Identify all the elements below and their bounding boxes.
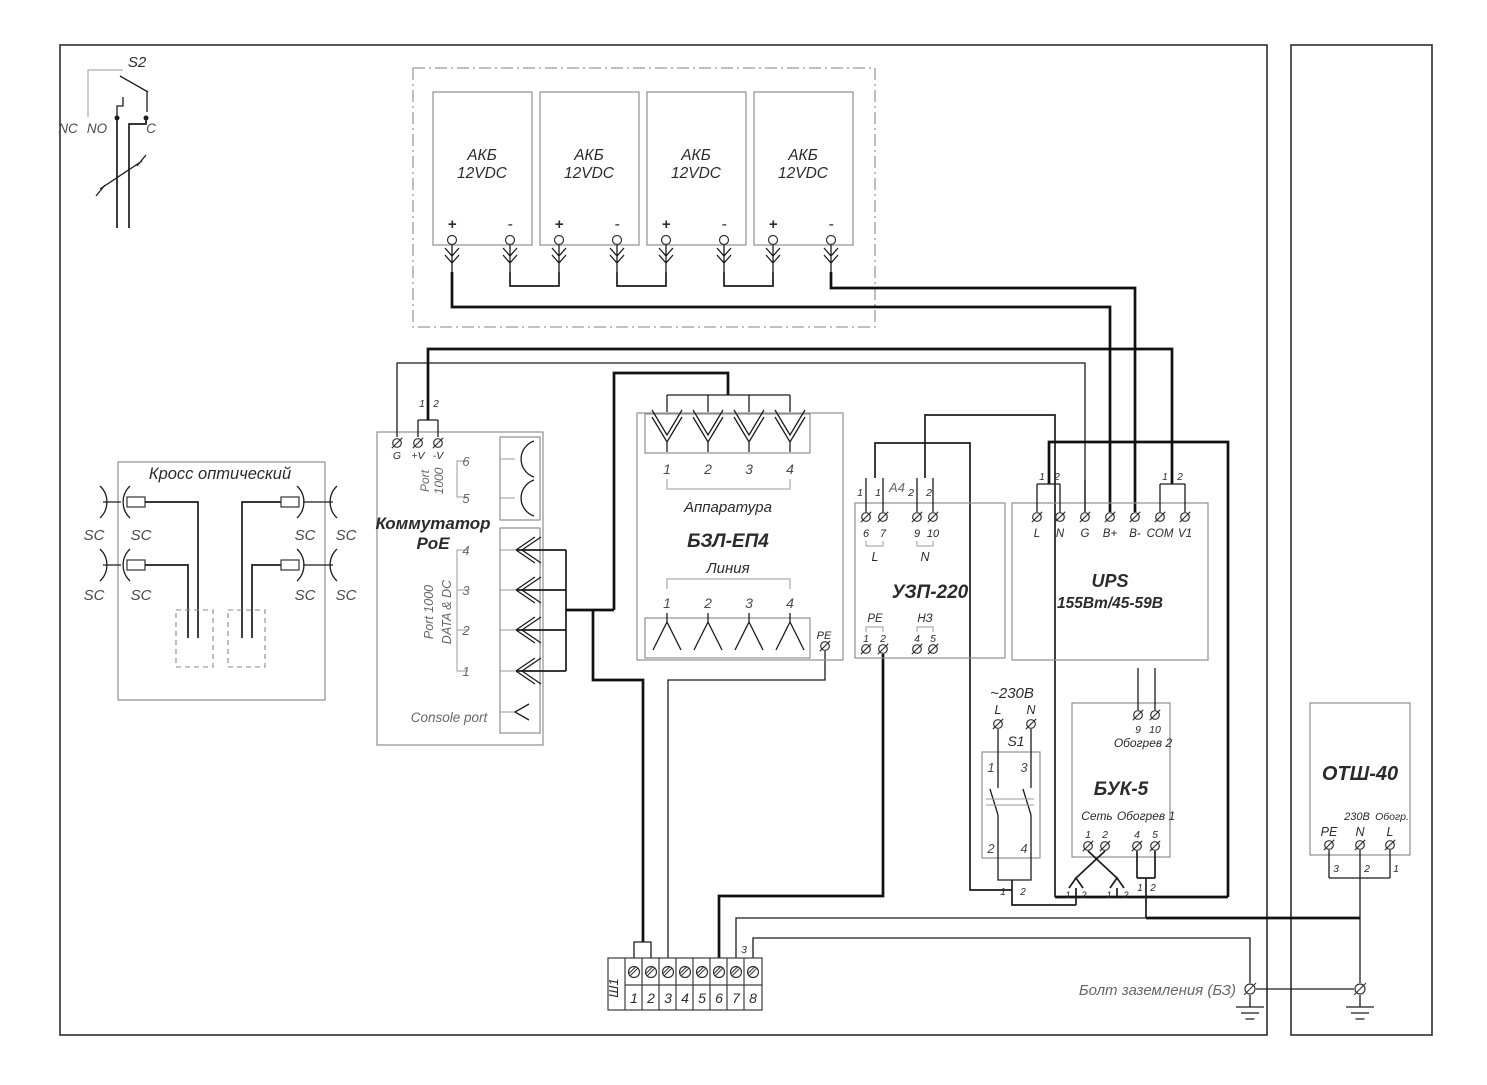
buk-net-label: Сеть (1081, 809, 1113, 823)
s1-wire2: 2 (1019, 887, 1026, 898)
buk-n5: 5 (1152, 829, 1158, 841)
otsh-title: ОТШ-40 (1322, 763, 1398, 785)
bat4-minus: - (828, 216, 833, 233)
bzl-bottom-strip (645, 618, 810, 658)
otsh-wire3: 3 (1333, 863, 1339, 875)
battery-series-links (510, 272, 773, 286)
poe-port2-label: 2 (461, 623, 470, 638)
poe-port6-label: 6 (462, 454, 470, 469)
battery-1-voltage: 12VDC (457, 165, 508, 182)
bzl-title: БЗЛ-ЕП4 (687, 531, 769, 552)
bzl-app-4: 4 (786, 461, 794, 477)
ups-l: L (1034, 528, 1040, 540)
uzp-t7: 7 (880, 528, 887, 540)
buk-title: БУК-5 (1094, 779, 1149, 800)
port1000-label-b: 1000 (432, 467, 446, 494)
poe-wire2-label: 2 (432, 399, 439, 410)
buk-cable-label: 2 (1122, 890, 1129, 901)
bzl-line-4: 4 (786, 595, 794, 611)
sh1-4: 4 (681, 990, 689, 1006)
bzl-line-2: 2 (703, 595, 712, 611)
bzl-app-2: 2 (703, 461, 712, 477)
sh1-terminal-block: Ш1 1 2 3 4 5 6 7 8 (606, 942, 762, 1010)
bat1-plus: + (448, 216, 457, 233)
s1-c3: 3 (1020, 760, 1028, 775)
s2-c-label: C (146, 121, 156, 136)
ups-wire-label: 1 (1039, 472, 1045, 483)
uzp-b2: 2 (879, 633, 886, 645)
poe-port5-label: 5 (462, 491, 470, 506)
bzl-app-3: 3 (745, 461, 753, 477)
uzp-title: УЗП-220 (892, 582, 969, 603)
otsh-230v-label: 230В (1343, 811, 1370, 823)
uzp-t9: 9 (914, 528, 920, 540)
console-port-icon (515, 704, 529, 720)
otsh-pe-label: PE (1321, 825, 1338, 839)
ups-v1: V1 (1178, 528, 1192, 540)
s1-wire1: 1 (1000, 887, 1006, 898)
optical-cross: Кросс оптический SC SC SC SC SC SC SC SC (84, 462, 357, 700)
sc-label: SC (131, 587, 152, 604)
ground-bolt-2 (1354, 983, 1366, 995)
poe-vminus-terminal: -V (433, 450, 444, 462)
uzp-b1: 1 (863, 633, 869, 645)
port1000-label-a: Port (418, 469, 432, 492)
otsh-heat-label: Обогр. (1375, 811, 1409, 823)
bzl-app-1: 1 (663, 461, 671, 477)
ups-g: G (1081, 528, 1090, 540)
ups-title: UPS (1091, 571, 1128, 591)
bzl-pe-wire (668, 651, 825, 958)
sh1-5: 5 (698, 990, 706, 1006)
sc-label: SC (336, 587, 357, 604)
bat3-minus: - (721, 216, 726, 233)
sh1-6: 6 (715, 990, 723, 1006)
battery-3-label: АКБ (680, 147, 711, 164)
heat1-wire2: 2 (1149, 883, 1156, 894)
wiring: 3 (397, 349, 1360, 983)
sc-label: SC (295, 587, 316, 604)
ups-wire-label: 1 (1162, 472, 1168, 483)
ups-com: COM (1147, 528, 1174, 540)
console-port-label: Console port (411, 710, 489, 725)
bzl-fanout (667, 395, 790, 412)
sc-label: SC (295, 527, 316, 544)
battery-4-voltage: 12VDC (778, 165, 829, 182)
poe-port4-label: 4 (462, 543, 469, 558)
uzp-n-label: N (920, 550, 930, 564)
s1-c4: 4 (1020, 841, 1027, 856)
grounding: Болт заземления (БЗ) (1079, 918, 1374, 1019)
poe-g-terminal: G (393, 450, 401, 462)
schematic-canvas: S2 NC NO C АКБ 12VDC АКБ 12VDC АКБ 12VDC… (0, 0, 1487, 1080)
uzp-b5: 5 (930, 633, 936, 645)
optic-port-block (500, 437, 540, 520)
bat4-plus: + (769, 216, 778, 233)
bzl-pe-label: PE (817, 630, 832, 642)
poe-title-2: PoE (416, 534, 450, 553)
sh1-1: 1 (630, 990, 638, 1006)
fiber-pigtails (145, 502, 281, 638)
poe-wire1-label: 1 (419, 399, 425, 410)
splice-box-left (176, 610, 213, 667)
heat1-wire1: 1 (1137, 883, 1143, 894)
sc-label: SC (84, 587, 105, 604)
ups-bminus: B- (1129, 528, 1141, 540)
uzp-wire-label: 2 (907, 487, 914, 499)
s1-c1: 1 (987, 760, 994, 775)
battery-1-label: АКБ (466, 147, 497, 164)
buk-t10: 10 (1149, 724, 1161, 736)
bat2-plus: + (555, 216, 564, 233)
battery-plus-bus (452, 272, 1110, 512)
otsh-l-label: L (1387, 825, 1394, 839)
battery-bank: АКБ 12VDC АКБ 12VDC АКБ 12VDC АКБ 12VDC … (413, 68, 1135, 512)
wire3-label: 3 (741, 944, 747, 956)
poe-vplus-terminal: +V (411, 450, 425, 462)
uzp-220: 1 1 А4 2 2 6 7 9 10 L N УЗП-220 PE НЗ 1 … (855, 478, 1005, 658)
buk-n2: 2 (1101, 829, 1108, 841)
battery-3-voltage: 12VDC (671, 165, 722, 182)
optical-cross-title: Кросс оптический (149, 465, 291, 483)
buk-cable-label: 1 (1106, 890, 1111, 901)
uzp-pe-wire (719, 654, 883, 958)
net-cross-wires (1075, 851, 1118, 879)
poe-port3-label: 3 (462, 583, 470, 598)
s1-label: S1 (1007, 733, 1024, 749)
ups-bplus: B+ (1103, 528, 1118, 540)
sh1-8-ground-wire (753, 938, 1250, 983)
otsh-n-label: N (1355, 825, 1365, 839)
cable-mark (96, 155, 146, 196)
poe-port1-label: 1 (462, 664, 469, 679)
battery-2-label: АКБ (573, 147, 604, 164)
buk-cable-label: 1 (1065, 890, 1070, 901)
uzp-wire-label: 2 (925, 487, 932, 499)
ups-n: N (1056, 528, 1065, 540)
s2-no-label: NO (87, 121, 108, 136)
portdata-label-b: DATA & DC (440, 579, 454, 644)
uzp-b4: 4 (914, 633, 920, 645)
portdata-label-a: Port 1000 (422, 585, 436, 639)
bzl-line-3: 3 (745, 595, 753, 611)
ground-bolt-1 (1244, 983, 1256, 995)
uzp-nz-label: НЗ (917, 613, 932, 625)
bzl-line-label: Линия (705, 560, 749, 577)
buk-n1: 1 (1085, 829, 1091, 841)
uzp-wire-label: 1 (857, 487, 863, 499)
sc-label: SC (84, 527, 105, 544)
uzp-t10: 10 (927, 528, 940, 540)
bat2-minus: - (614, 216, 619, 233)
s1-l-label: L (995, 703, 1002, 717)
poe-title-1: Коммутатор (375, 514, 490, 533)
buk-n4: 4 (1134, 829, 1140, 841)
uzp-wire-label: 1 (875, 487, 881, 499)
uzp-cable-a4-label: А4 (888, 480, 905, 495)
ups-subtitle: 155Вт/45-59В (1057, 595, 1163, 612)
uzp-t6: 6 (863, 528, 870, 540)
s1-breaker: ~230В L N S1 1 3 2 4 1 2 (982, 685, 1040, 898)
s1-voltage-label: ~230В (990, 685, 1034, 702)
s2-nc-label: NC (58, 121, 78, 136)
ups-wire-label: 2 (1176, 472, 1183, 483)
bzl-apparatus-label: Аппаратура (683, 499, 772, 516)
bzl-line-1: 1 (663, 595, 671, 611)
buk-t9: 9 (1135, 724, 1141, 736)
ground-bolt-label: Болт заземления (БЗ) (1079, 982, 1236, 999)
uzp-l-label: L (872, 550, 879, 564)
sh1-7: 7 (732, 990, 741, 1006)
s1-c2: 2 (986, 841, 995, 856)
otsh-40: ОТШ-40 230В Обогр. PE N L 3 2 1 (1310, 703, 1410, 918)
buk-heat1-label: Обогрев 1 (1117, 809, 1175, 823)
sc-label: SC (131, 527, 152, 544)
sh1-8: 8 (749, 990, 757, 1006)
bat3-plus: + (662, 216, 671, 233)
s2-label: S2 (128, 54, 147, 71)
buk-cable-label: 2 (1080, 890, 1087, 901)
right-panel-outline (1291, 45, 1432, 1035)
s1-n-label: N (1026, 703, 1036, 717)
sh1-2: 2 (646, 990, 655, 1006)
s2-switch: S2 NC NO C (58, 54, 156, 228)
otsh-wire2: 2 (1363, 863, 1370, 875)
otsh-wire1: 1 (1393, 863, 1399, 875)
battery-4-label: АКБ (787, 147, 818, 164)
wiring-diagram: S2 NC NO C АКБ 12VDC АКБ 12VDC АКБ 12VDC… (0, 0, 1487, 1080)
uzp-pe-label: PE (867, 613, 883, 625)
ups-wire-label: 2 (1053, 472, 1060, 483)
sc-label: SC (336, 527, 357, 544)
buk-5: 9 10 Обогрев 2 БУК-5 Сеть Обогрев 1 1 2 … (1065, 668, 1175, 918)
poe-port-bus (516, 550, 566, 671)
sh1-bridge-1-2 (634, 942, 651, 958)
sh1-label: Ш1 (606, 978, 621, 997)
battery-2-voltage: 12VDC (564, 165, 615, 182)
sh1-3: 3 (664, 990, 672, 1006)
poe-switch: G +V -V 1 2 6 5 Port 1000 Коммутатор PoE… (375, 399, 566, 745)
bat1-minus: - (507, 216, 512, 233)
bzl-ep4: 1 2 3 4 Аппаратура БЗЛ-ЕП4 Линия 1 2 3 4… (637, 395, 843, 660)
net-cable-clamps (1069, 878, 1124, 905)
splice-box-right (228, 610, 265, 667)
buk-heat2-label: Обогрев 2 (1114, 736, 1173, 750)
